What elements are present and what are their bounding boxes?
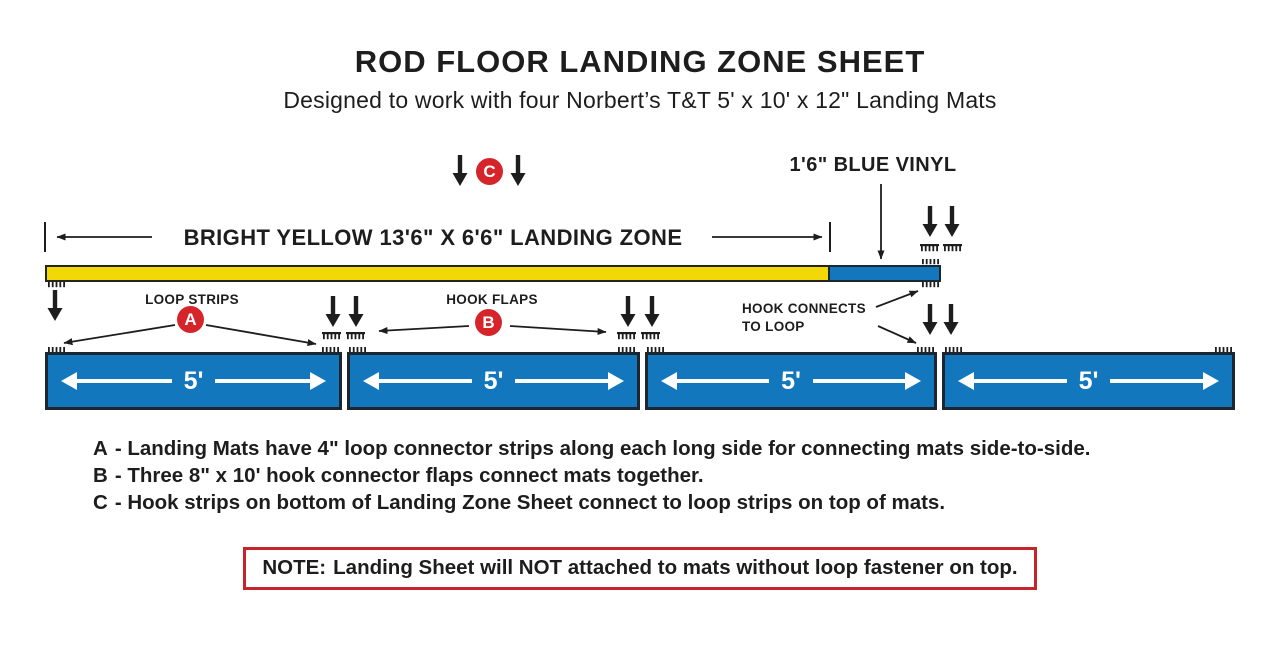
legend-letter: A — [93, 437, 108, 460]
page-title: ROD FLOOR LANDING ZONE SHEET — [0, 44, 1280, 80]
sheet-hook-arrow-left — [48, 290, 63, 321]
page-subtitle: Designed to work with four Norbert’s T&T… — [0, 87, 1280, 114]
mat-arrow-shaft — [1110, 379, 1203, 383]
mat-width-label: 5' — [484, 369, 504, 394]
legend-text: - Hook strips on bottom of Landing Zone … — [115, 491, 945, 514]
mat-arrow-shaft — [215, 379, 310, 383]
hook-connects-line1: HOOK CONNECTS — [742, 300, 866, 318]
landing-zone-diagram: ROD FLOOR LANDING ZONE SHEET Designed to… — [0, 0, 1280, 653]
hook-connects-label: HOOK CONNECTS TO LOOP — [742, 300, 866, 336]
mat-arrow-shaft — [974, 379, 1067, 383]
marker-a-badge: A — [177, 306, 204, 333]
mat-arrow-left-icon — [363, 372, 379, 390]
mat-arrow-right-icon — [310, 372, 326, 390]
legend-text: - Landing Mats have 4" loop connector st… — [115, 437, 1091, 460]
marker-b-badge: B — [475, 309, 502, 336]
mat-arrow-shaft — [677, 379, 769, 383]
sheet-hook-arrows-right — [923, 304, 959, 335]
legend-letter: C — [93, 491, 108, 514]
marker-c-badge: C — [476, 158, 503, 185]
legend-letter: B — [93, 464, 108, 487]
mat-arrow-right-icon — [608, 372, 624, 390]
legend-item-a: A- Landing Mats have 4" loop connector s… — [93, 435, 1090, 462]
note-text: Landing Sheet will NOT attached to mats … — [333, 556, 1018, 579]
mat-arrow-right-icon — [1203, 372, 1219, 390]
mat-width-label: 5' — [1079, 369, 1099, 394]
mat-arrow-right-icon — [905, 372, 921, 390]
landing-mat-3: 5' — [645, 352, 937, 410]
legend-item-b: B- Three 8" x 10' hook connector flaps c… — [93, 462, 1090, 489]
landing-zone-sheet-yellow — [45, 265, 830, 282]
mat-arrow-left-icon — [61, 372, 77, 390]
legend: A- Landing Mats have 4" loop connector s… — [93, 435, 1090, 516]
note-label: NOTE: — [262, 556, 326, 579]
landing-zone-label: BRIGHT YELLOW 13'6" X 6'6" LANDING ZONE — [184, 225, 683, 250]
mat-arrow-shaft — [77, 379, 172, 383]
mat-width-label: 5' — [781, 369, 801, 394]
hook-flaps-label: HOOK FLAPS — [446, 292, 538, 308]
mat-arrow-shaft — [515, 379, 608, 383]
note-box: NOTE:Landing Sheet will NOT attached to … — [243, 547, 1036, 590]
header: ROD FLOOR LANDING ZONE SHEET Designed to… — [0, 44, 1280, 114]
legend-text: - Three 8" x 10' hook connector flaps co… — [115, 464, 704, 487]
mat-arrow-shaft — [379, 379, 472, 383]
legend-item-c: C- Hook strips on bottom of Landing Zone… — [93, 489, 1090, 516]
landing-mat-1: 5' — [45, 352, 342, 410]
landing-mat-4: 5' — [942, 352, 1235, 410]
hook-flap-arrows-junction-2 — [617, 296, 660, 339]
mat-width-label: 5' — [184, 369, 204, 394]
hook-connects-pointer-arrows — [876, 291, 918, 343]
mat-arrow-left-icon — [958, 372, 974, 390]
mat-arrow-shaft — [813, 379, 905, 383]
landing-mat-2: 5' — [347, 352, 640, 410]
sheet-hook-arrows-top-right — [920, 206, 962, 251]
hook-flap-arrows-junction-1 — [322, 296, 365, 339]
blue-vinyl-label: 1'6" BLUE VINYL — [790, 154, 957, 177]
blue-vinyl-strip — [828, 265, 941, 282]
note-container: NOTE:Landing Sheet will NOT attached to … — [0, 547, 1280, 590]
hook-connects-line2: TO LOOP — [742, 318, 866, 336]
mat-arrow-left-icon — [661, 372, 677, 390]
